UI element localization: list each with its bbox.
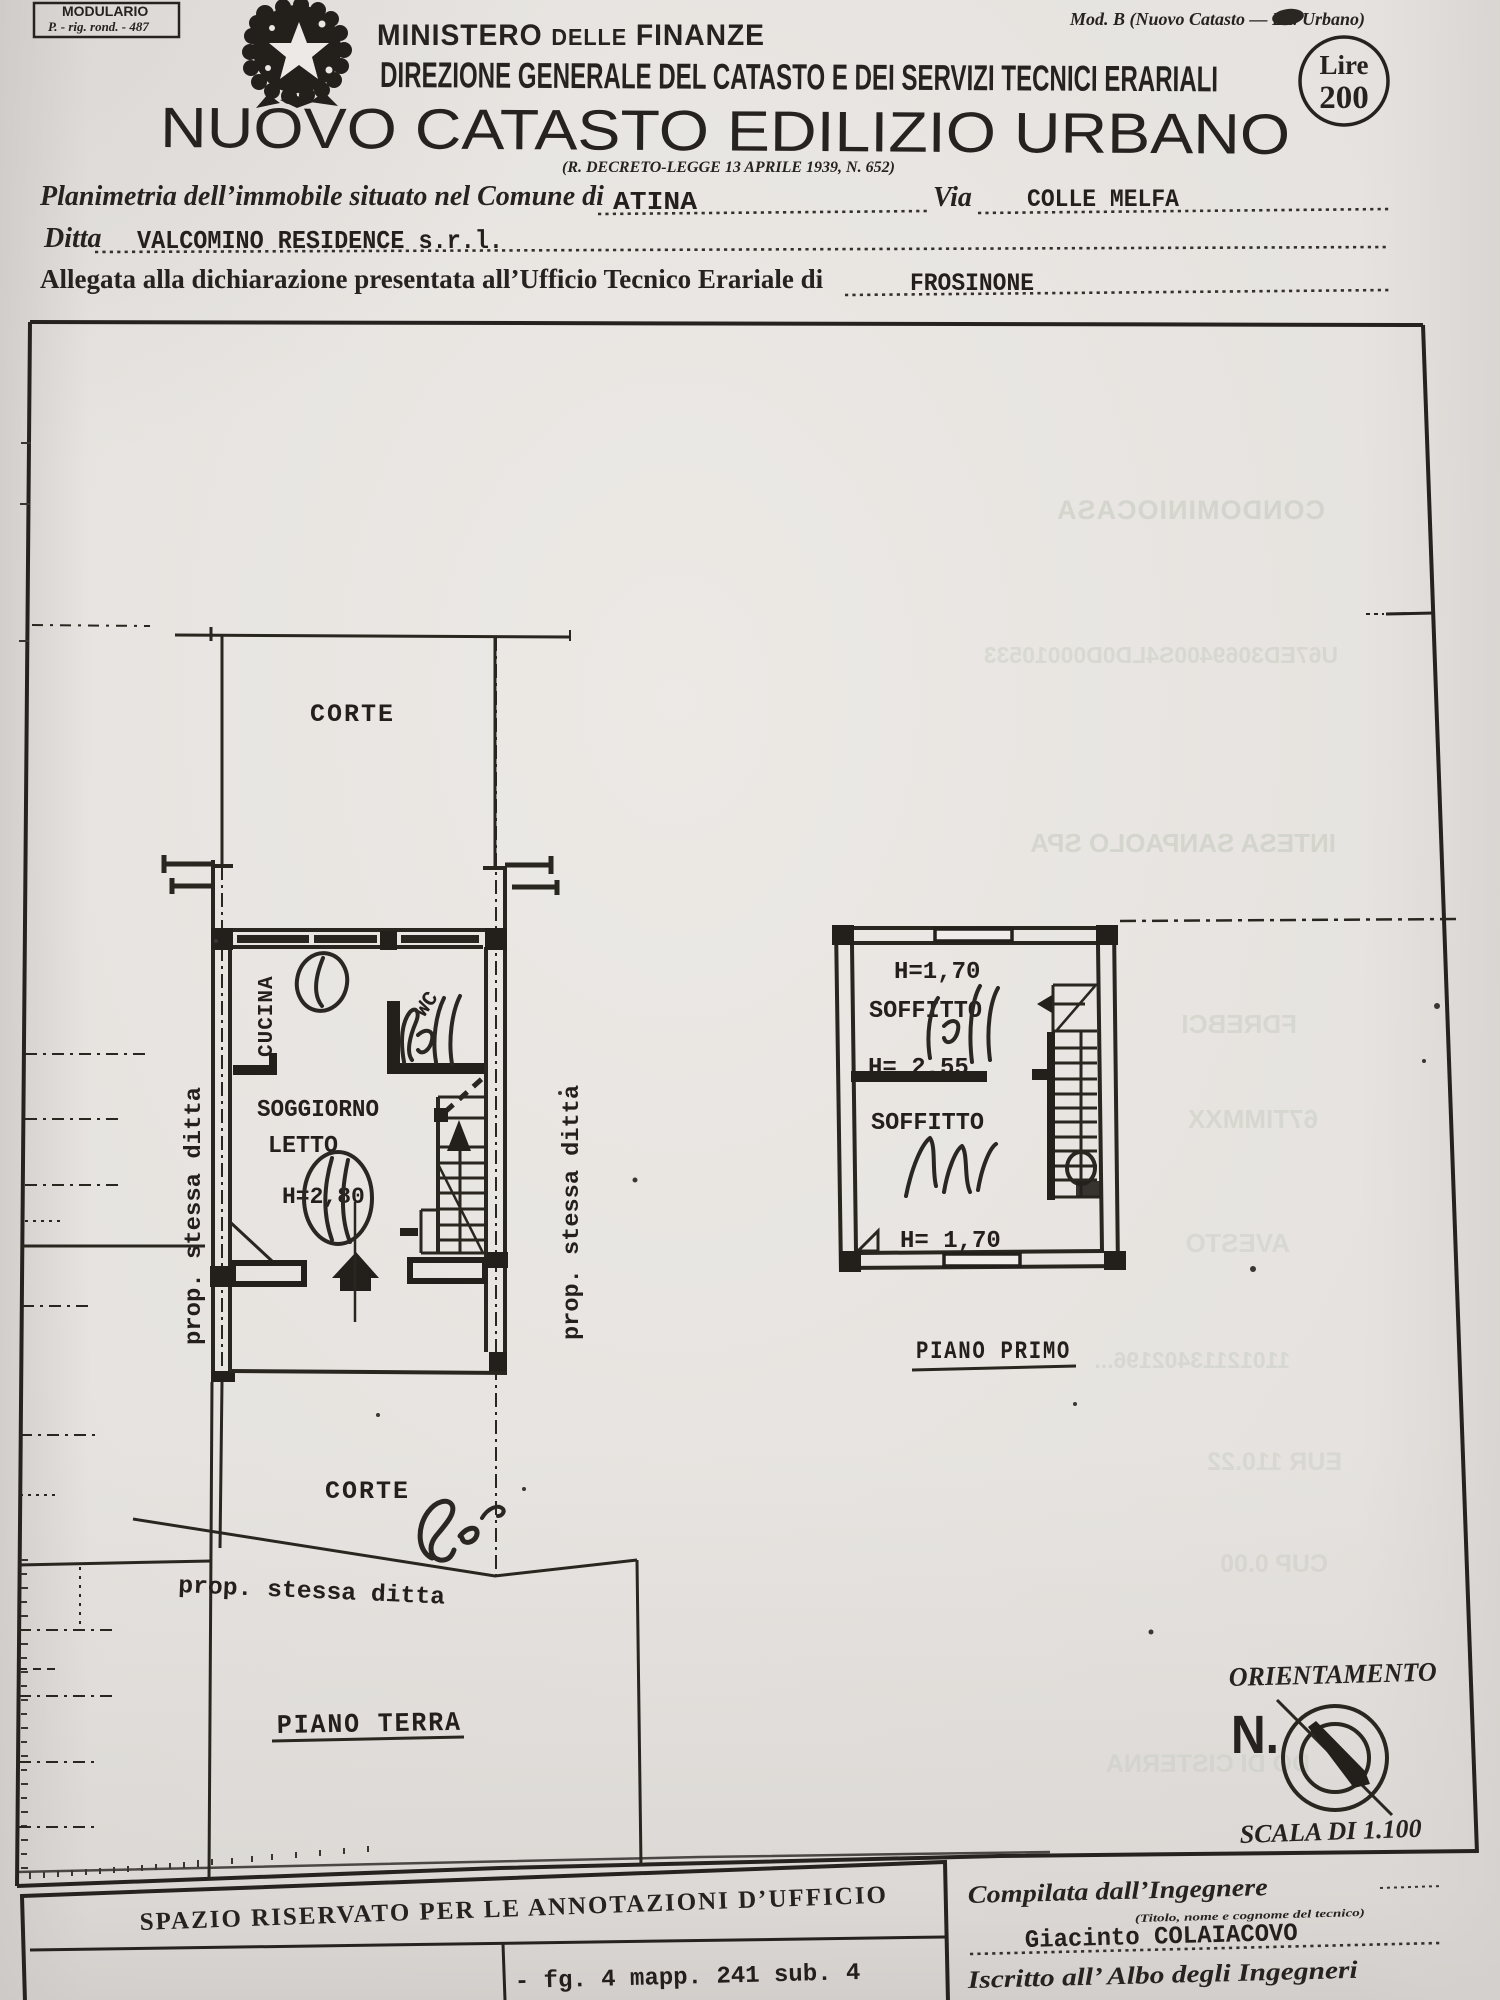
svg-text:200: 200 [1319, 80, 1369, 116]
svg-text:SOFFITTO: SOFFITTO [869, 998, 982, 1025]
svg-text:CONDOMINIOCASA: CONDOMINIOCASA [1056, 495, 1325, 525]
svg-text:67TIMMXX: 67TIMMXX [1187, 1104, 1318, 1134]
svg-text:FDREBCI: FDREBCI [1181, 1009, 1297, 1039]
svg-text:VALCOMINO RESIDENCE s.r.l.: VALCOMINO RESIDENCE s.r.l. [137, 226, 503, 256]
svg-text:DO DI CISTERNA: DO DI CISTERNA [1106, 1750, 1310, 1778]
svg-text:Planimetria dell’immobile situ: Planimetria dell’immobile situato nel Co… [39, 181, 604, 212]
svg-text:FROSINONE: FROSINONE [910, 269, 1034, 298]
svg-text:Allegata alla dichiarazione pr: Allegata alla dichiarazione presentata a… [40, 264, 824, 294]
svg-text:N.: N. [1231, 1705, 1279, 1765]
svg-text:CORTE: CORTE [310, 700, 395, 729]
svg-text:H= 2,55: H= 2,55 [868, 1055, 969, 1082]
svg-text:SOGGIORNO: SOGGIORNO [257, 1097, 379, 1124]
svg-text:MINISTERO DELLE FINANZE: MINISTERO DELLE FINANZE [377, 19, 765, 52]
svg-text:DIREZIONE GENERALE DEL CATASTO: DIREZIONE GENERALE DEL CATASTO E DEI SER… [380, 54, 1218, 99]
svg-text:COLLE MELFA: COLLE MELFA [1027, 185, 1179, 214]
svg-text:ORIENTAMENTO: ORIENTAMENTO [1228, 1657, 1437, 1692]
svg-text:NUOVO CATASTO EDILIZIO URBANO: NUOVO CATASTO EDILIZIO URBANO [160, 96, 1290, 167]
svg-text:ATINA: ATINA [613, 187, 697, 217]
svg-text:H=1,70: H=1,70 [894, 959, 980, 986]
svg-text:SOFFITTO: SOFFITTO [871, 1110, 984, 1137]
svg-text:INTESA SANPAOLO SPA: INTESA SANPAOLO SPA [1030, 828, 1336, 858]
svg-text:AVESTO: AVESTO [1185, 1228, 1290, 1258]
svg-text:CUP 0.00: CUP 0.00 [1220, 1550, 1328, 1578]
svg-text:prop. stessa ditta: prop. stessa ditta [181, 1087, 207, 1345]
svg-text:CUCINA: CUCINA [256, 975, 279, 1057]
svg-text:CORTE: CORTE [325, 1477, 410, 1506]
svg-text:Via: Via [933, 182, 972, 213]
svg-text:11012113402196...: 11012113402196... [1094, 1347, 1290, 1373]
svg-text:EUR 110.22: EUR 110.22 [1207, 1448, 1342, 1476]
svg-text:MODULARIO: MODULARIO [62, 3, 148, 19]
svg-text:Lire: Lire [1320, 50, 1369, 80]
svg-text:Mod. B (Nuovo Catasto — Ed. Ur: Mod. B (Nuovo Catasto — Ed. Urbano) [1069, 9, 1365, 30]
svg-text:P. - rig. rond. - 487: P. - rig. rond. - 487 [48, 19, 149, 34]
svg-text:H= 1,70: H= 1,70 [900, 1228, 1001, 1255]
svg-text:Ditta: Ditta [43, 223, 102, 254]
svg-text:(R. DECRETO-LEGGE 13 APRILE 19: (R. DECRETO-LEGGE 13 APRILE 1939, N. 652… [562, 159, 895, 176]
svg-text:prop. stessa ditta: prop. stessa ditta [559, 1085, 585, 1340]
svg-text:U67ED3069400S4LD0D00010533: U67ED3069400S4LD0D00010533 [984, 642, 1338, 668]
svg-text:PIANO PRIMO: PIANO PRIMO [916, 1337, 1071, 1366]
